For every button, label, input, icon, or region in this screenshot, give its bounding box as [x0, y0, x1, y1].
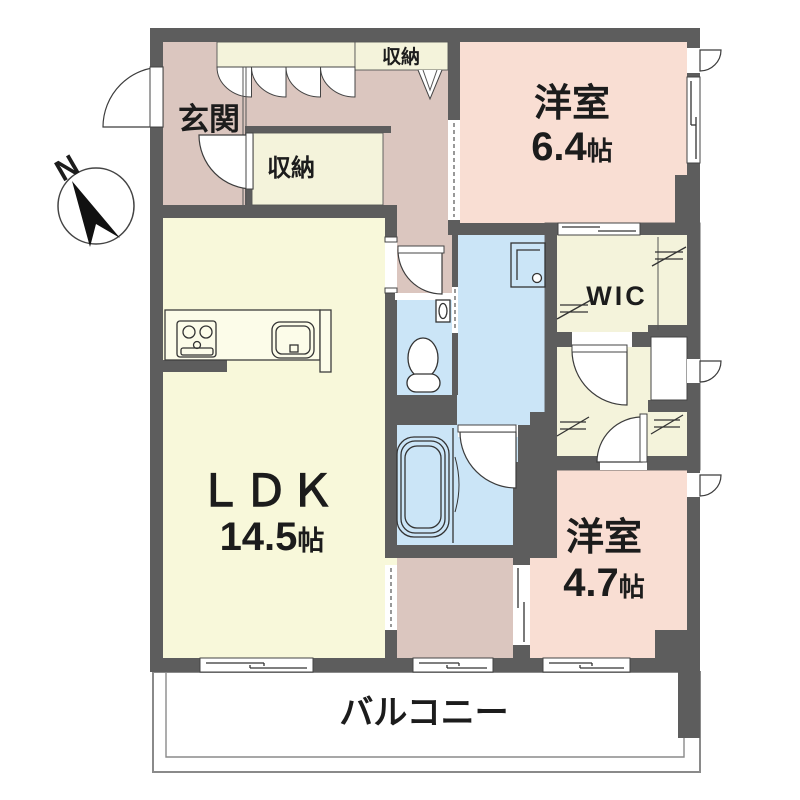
wall-segment — [678, 648, 700, 738]
wall-segment — [493, 658, 543, 672]
wall-segment — [150, 28, 163, 67]
entry-door-leaf — [150, 67, 163, 127]
wall-segment — [687, 497, 700, 658]
room-label-genkan: 玄関 — [178, 102, 240, 137]
shoe-closet — [217, 42, 355, 67]
floor-plan-canvas: N 玄関 収納 収納 洋室 6.4帖 WIC ＬＤＫ 14.5帖 洋室 4.7帖… — [0, 0, 800, 800]
wall-segment — [513, 645, 530, 658]
floor-plan: N 玄関 収納 収納 洋室 6.4帖 WIC ＬＤＫ 14.5帖 洋室 4.7帖… — [0, 0, 800, 800]
meter-box-door-icon — [700, 50, 721, 71]
room-label-closet-top: 収納 — [382, 45, 420, 68]
sliding-door-icon — [448, 120, 460, 220]
meter-box-door-icon — [700, 475, 721, 496]
sliding-door-icon — [558, 223, 640, 235]
wall-segment — [687, 28, 700, 48]
door-leaf — [572, 345, 627, 352]
wall-segment — [393, 395, 457, 425]
wall-segment — [545, 332, 572, 347]
wall-segment — [648, 400, 700, 412]
meter-box-niche — [651, 337, 687, 400]
sliding-door-icon — [513, 565, 530, 645]
room-washroom — [452, 235, 557, 425]
door-leaf — [458, 425, 516, 432]
door-leaf — [640, 414, 647, 462]
wall-segment — [640, 223, 700, 235]
wall-segment — [687, 73, 700, 77]
wall-segment — [150, 658, 200, 672]
room-label-bedroom-64: 洋室 — [534, 82, 610, 125]
window-icon — [687, 77, 700, 163]
meter-box-door-gap — [687, 473, 700, 497]
wall-segment — [647, 456, 700, 470]
room-ldk — [163, 205, 397, 658]
doorway-opening — [395, 293, 452, 300]
wall-segment — [385, 545, 557, 558]
wall-segment — [150, 360, 227, 372]
room-label-closet-hall: 収納 — [267, 154, 315, 182]
wall-segment — [150, 205, 397, 218]
window-icon — [200, 658, 313, 672]
wall-segment — [545, 235, 557, 425]
wall-segment — [452, 235, 458, 287]
wall-segment — [452, 333, 458, 395]
window-icon — [413, 658, 493, 672]
wall-segment — [530, 456, 600, 470]
wall-segment — [448, 223, 558, 235]
door-leaf — [398, 246, 444, 253]
meter-box-door-gap — [687, 48, 700, 73]
hand-basin-icon — [436, 300, 450, 322]
window-icon — [543, 658, 630, 672]
wall-segment — [530, 412, 557, 456]
wall-segment — [448, 42, 460, 120]
room-label-wic: WIC — [586, 281, 647, 311]
meter-box-door-icon — [700, 361, 721, 382]
doorway-opening — [385, 240, 397, 290]
wall-segment — [245, 126, 391, 133]
door-jamb — [385, 288, 397, 293]
door-jamb — [385, 237, 397, 242]
meter-box-door-gap — [687, 359, 700, 383]
corridor — [397, 558, 513, 658]
wall-segment — [150, 28, 700, 42]
door-leaf — [246, 133, 253, 189]
room-label-ldk: ＬＤＫ — [198, 467, 336, 516]
wall-segment — [385, 630, 397, 658]
toilet-icon — [407, 338, 440, 392]
balcony-label: バルコニー — [339, 694, 508, 732]
wall-segment — [675, 175, 687, 223]
compass-north-icon: N — [50, 149, 134, 247]
room-label-bedroom-47: 洋室 — [566, 516, 642, 559]
wall-segment — [313, 658, 413, 672]
wall-segment — [648, 325, 700, 337]
